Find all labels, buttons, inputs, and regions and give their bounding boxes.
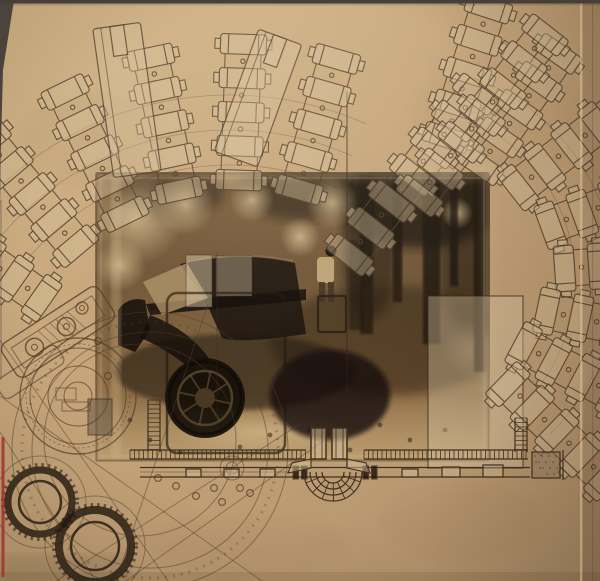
- edge-lighting-and-fold: [0, 0, 600, 581]
- red-registration-line: [2, 437, 5, 577]
- album-art-photo: [0, 0, 600, 581]
- background-surface-top: [0, 0, 600, 4]
- artwork-canvas: [0, 0, 600, 581]
- sleeve-fold-edge: [580, 0, 582, 581]
